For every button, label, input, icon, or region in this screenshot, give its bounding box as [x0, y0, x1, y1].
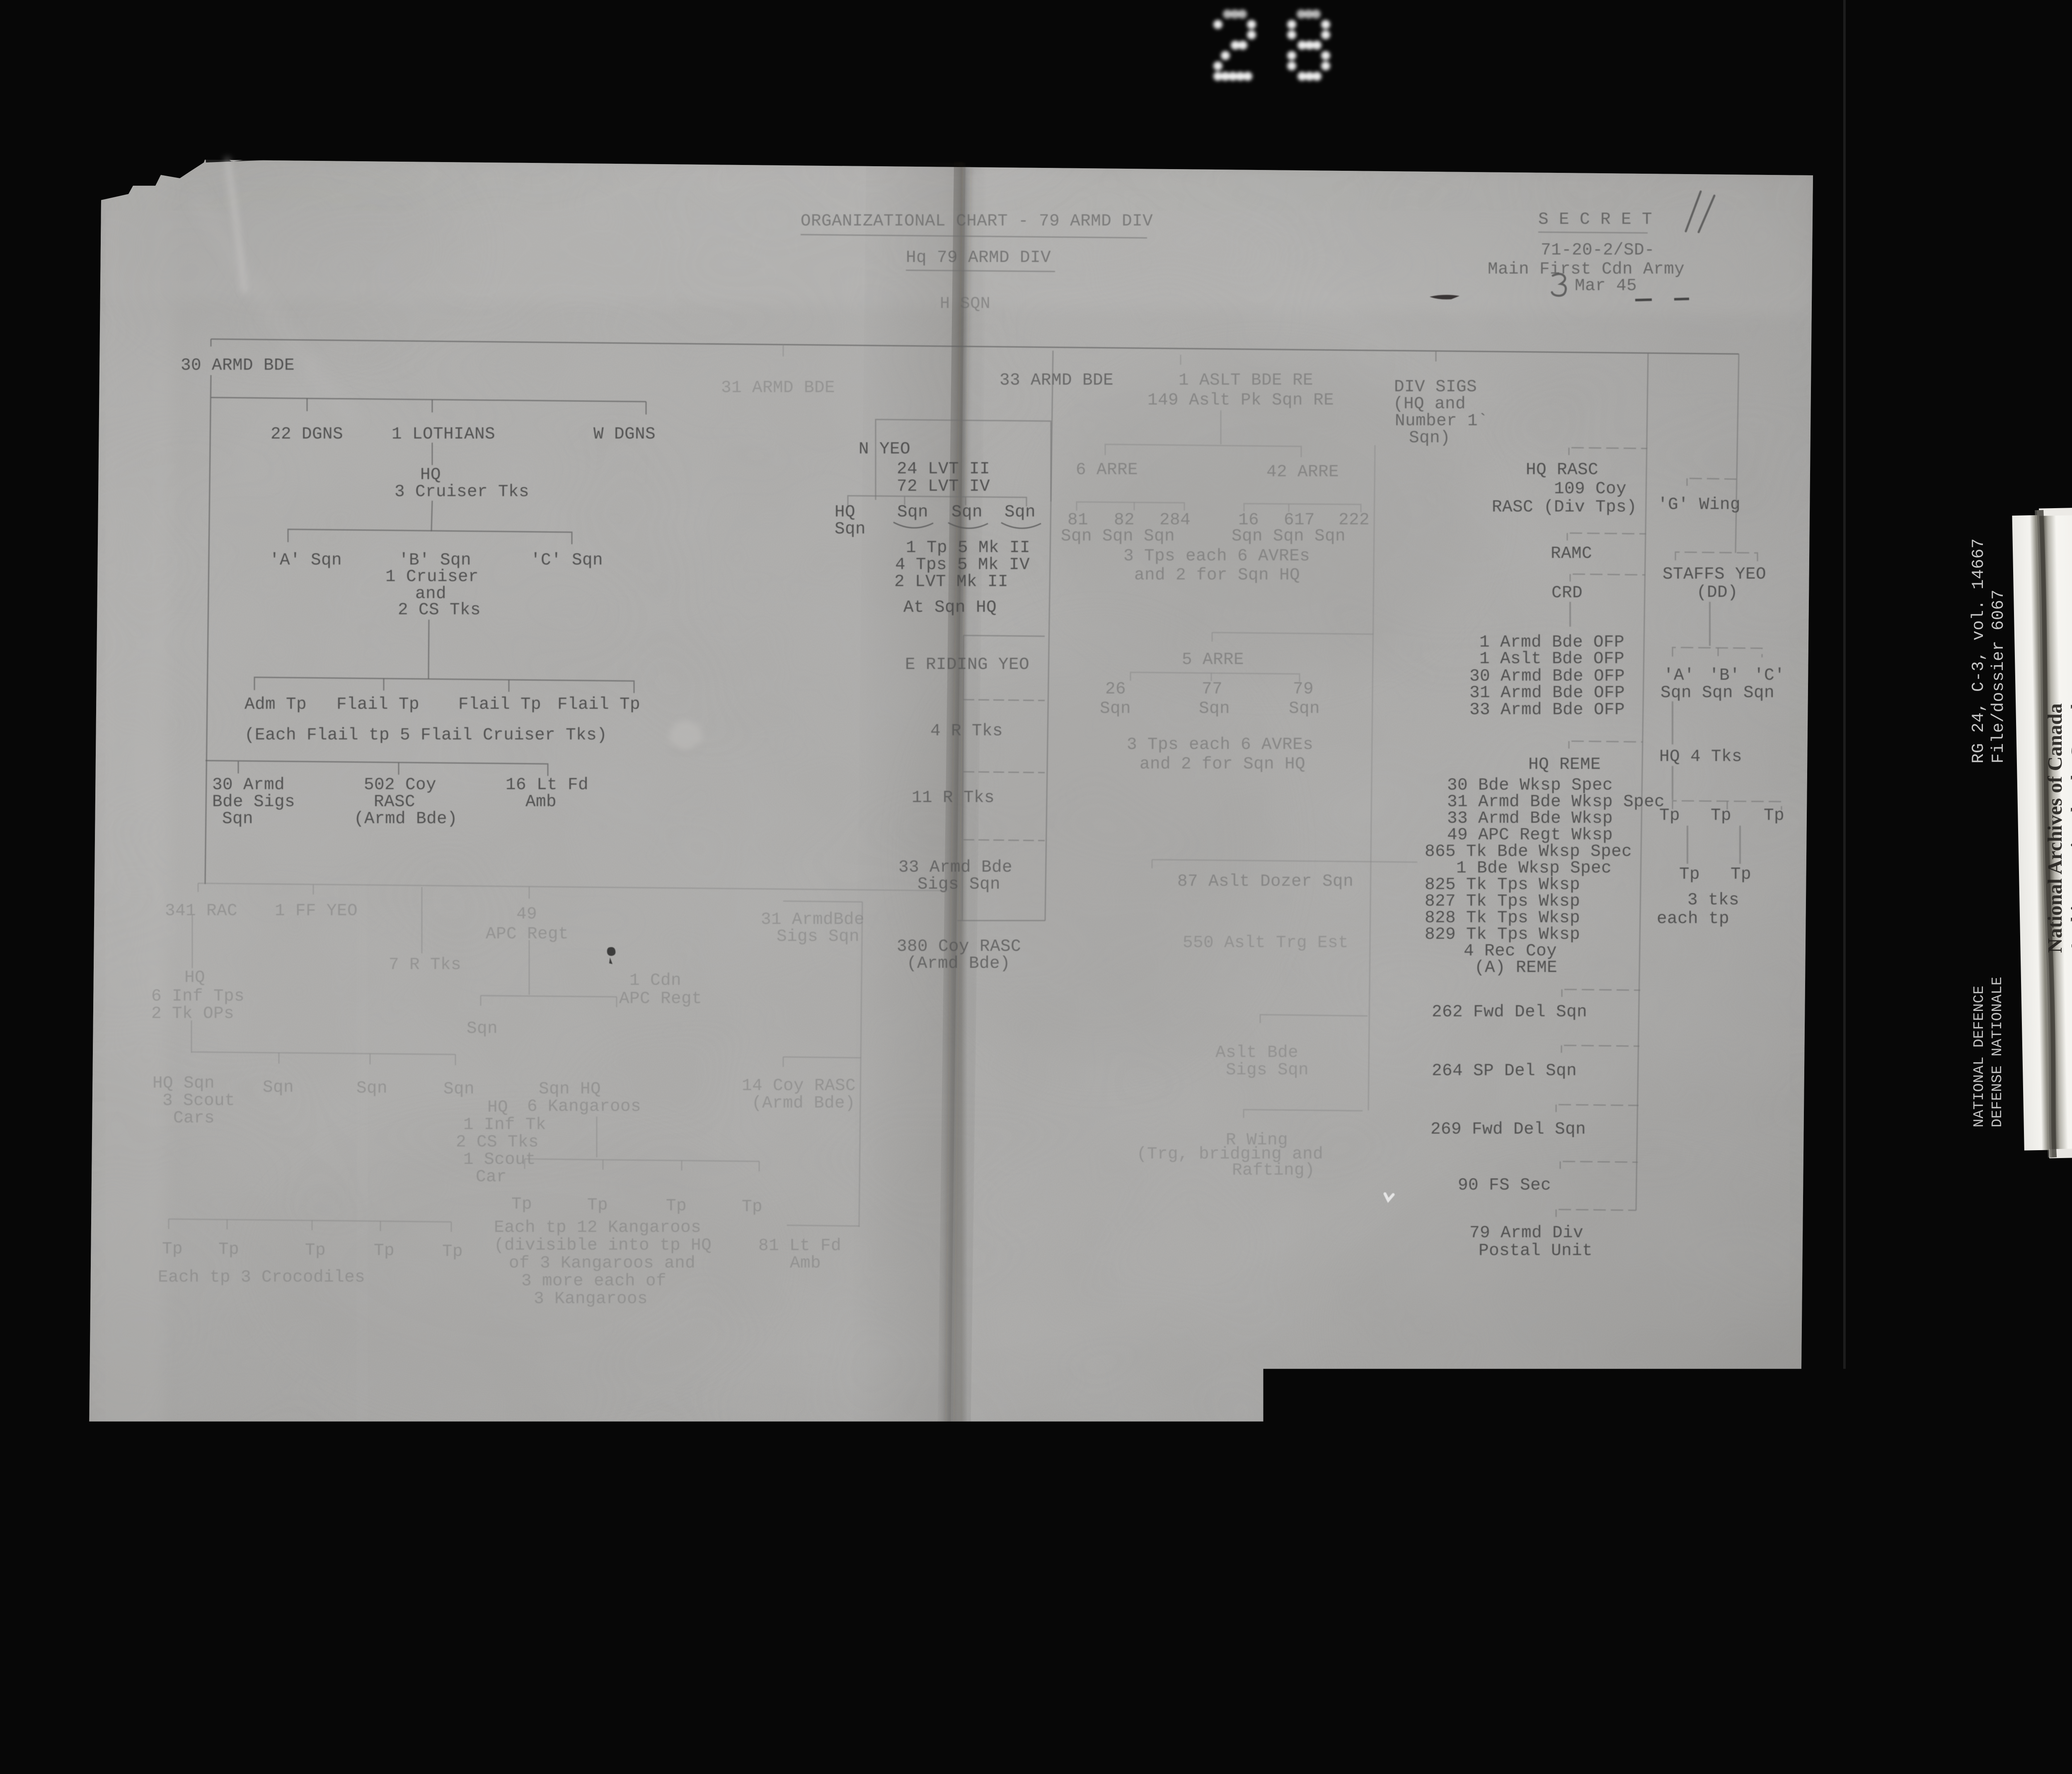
svg-text:502 Coy: 502 Coy: [364, 776, 436, 795]
svg-text:26: 26: [1105, 680, 1126, 699]
svg-text:DEFENSE NATIONALE: DEFENSE NATIONALE: [1989, 977, 2006, 1127]
svg-text:'A' Sqn: 'A' Sqn: [269, 551, 342, 570]
svg-text:Tp: Tp: [218, 1240, 239, 1259]
svg-text:(Armd Bde): (Armd Bde): [752, 1094, 855, 1113]
svg-text:1 Cdn: 1 Cdn: [629, 971, 681, 990]
svg-text:Mar 45: Mar 45: [1575, 276, 1637, 296]
svg-text:'G' Wing: 'G' Wing: [1658, 495, 1740, 514]
svg-text:Postal Unit: Postal Unit: [1479, 1241, 1593, 1260]
svg-text:Each tp 12 Kangaroos: Each tp 12 Kangaroos: [494, 1218, 701, 1237]
svg-text:Sqn: Sqn: [835, 520, 866, 539]
svg-text:Number 1`: Number 1`: [1395, 412, 1488, 431]
svg-text:1 Cruiser: 1 Cruiser: [385, 567, 479, 586]
svg-text:HQ: HQ: [184, 968, 205, 987]
svg-text:269 Fwd Del Sqn: 269 Fwd Del Sqn: [1431, 1120, 1586, 1139]
svg-text:264 SP Del Sqn: 264 SP Del Sqn: [1432, 1061, 1577, 1081]
svg-text:Sqn Sqn Sqn: Sqn Sqn Sqn: [1061, 527, 1175, 546]
svg-text:6 Inf Tps: 6 Inf Tps: [151, 987, 244, 1006]
svg-text:16 Lt Fd: 16 Lt Fd: [506, 776, 588, 795]
svg-text:30 Armd: 30 Armd: [212, 776, 285, 795]
svg-text:Tp: Tp: [742, 1197, 762, 1217]
svg-text:HQ 4 Tks: HQ 4 Tks: [1659, 747, 1742, 766]
svg-text:'A': 'A': [1663, 666, 1694, 685]
svg-text:87 Aslt Dozer Sqn: 87 Aslt Dozer Sqn: [1177, 872, 1353, 891]
svg-text:Tp: Tp: [374, 1241, 395, 1260]
svg-text:Sqn Sqn Sqn: Sqn Sqn Sqn: [1232, 527, 1346, 546]
svg-text:Sqn: Sqn: [467, 1019, 498, 1038]
svg-text:Sqn: Sqn: [1005, 503, 1036, 522]
svg-text:'C': 'C': [1754, 666, 1785, 685]
svg-text:109 Coy: 109 Coy: [1554, 480, 1627, 499]
svg-text:Sqn): Sqn): [1409, 429, 1450, 448]
svg-text:Amb: Amb: [525, 792, 557, 812]
svg-text:341 RAC: 341 RAC: [165, 902, 237, 921]
svg-text:4 R Tks: 4 R Tks: [930, 722, 1003, 741]
svg-text:(Armd Bde): (Armd Bde): [354, 809, 457, 829]
svg-text:Tp: Tp: [1659, 806, 1680, 825]
svg-text:14 Coy RASC: 14 Coy RASC: [742, 1076, 856, 1095]
svg-text:'B': 'B': [1709, 666, 1740, 685]
svg-text:Sigs Sqn: Sigs Sqn: [777, 927, 859, 946]
svg-text:Car: Car: [476, 1168, 507, 1187]
svg-text:2 Tk OPs: 2 Tk OPs: [151, 1004, 234, 1023]
svg-text:1 Aslt Bde OFP: 1 Aslt Bde OFP: [1479, 649, 1624, 669]
svg-text:Cars: Cars: [173, 1109, 215, 1128]
svg-text:CRD: CRD: [1552, 584, 1583, 603]
svg-text:RASC (Div Tps): RASC (Div Tps): [1492, 498, 1637, 517]
svg-text:1 Tp 5 Mk II: 1 Tp 5 Mk II: [906, 538, 1030, 557]
svg-text:S E C R E T: S E C R E T: [1538, 210, 1652, 229]
svg-text:Sqn: Sqn: [222, 809, 253, 829]
svg-text:Amb: Amb: [790, 1254, 821, 1273]
svg-text:ORGANIZATIONAL CHART - 79 ARMD: ORGANIZATIONAL CHART - 79 ARMD DIV: [801, 212, 1153, 231]
svg-text:and 2 for Sqn HQ: and 2 for Sqn HQ: [1134, 566, 1300, 585]
svg-text:Archives nationales du Canada: Archives nationales du Canada: [2067, 694, 2072, 953]
svg-text:Sqn: Sqn: [1199, 699, 1230, 718]
svg-text:Flail Tp: Flail Tp: [557, 695, 640, 714]
svg-text:Tp: Tp: [1711, 806, 1731, 825]
svg-text:Sqn: Sqn: [897, 503, 928, 522]
svg-text:6 Kangaroos: 6 Kangaroos: [527, 1097, 641, 1116]
svg-text:Rafting): Rafting): [1232, 1161, 1315, 1180]
svg-text:'C' Sqn: 'C' Sqn: [530, 551, 603, 570]
svg-text:Aslt Bde: Aslt Bde: [1215, 1043, 1298, 1062]
svg-text:6 ARRE: 6 ARRE: [1076, 460, 1138, 480]
svg-text:5 ARRE: 5 ARRE: [1182, 650, 1244, 669]
svg-text:Each tp 3 Crocodiles: Each tp 3 Crocodiles: [158, 1268, 365, 1287]
svg-text:1 Inf Tk: 1 Inf Tk: [463, 1115, 546, 1134]
svg-text:Tp: Tp: [162, 1240, 183, 1259]
svg-text:(HQ and: (HQ and: [1393, 395, 1466, 414]
svg-text:Flail Tp: Flail Tp: [336, 695, 419, 714]
svg-text:Flail Tp: Flail Tp: [458, 695, 541, 714]
svg-text:81 Lt Fd: 81 Lt Fd: [758, 1236, 841, 1255]
svg-text:3 Tps each 6 AVREs: 3 Tps each 6 AVREs: [1127, 735, 1313, 754]
svg-text:(A) REME: (A) REME: [1474, 958, 1557, 977]
svg-text:3 Scout: 3 Scout: [162, 1091, 235, 1110]
svg-text:Tp: Tp: [587, 1196, 608, 1215]
svg-text:Sqn Sqn Sqn: Sqn Sqn Sqn: [1661, 683, 1774, 703]
svg-text:31 ARMD BDE: 31 ARMD BDE: [721, 378, 835, 397]
svg-text:3 more each of: 3 more each of: [521, 1272, 666, 1291]
svg-text:E RIDING YEO: E RIDING YEO: [905, 655, 1029, 674]
svg-text:149 Aslt Pk Sqn RE: 149 Aslt Pk Sqn RE: [1147, 391, 1334, 410]
svg-text:(divisible into tp HQ: (divisible into tp HQ: [494, 1236, 712, 1255]
svg-text:3 Kangaroos: 3 Kangaroos: [534, 1289, 648, 1309]
svg-text:Tp: Tp: [305, 1241, 326, 1260]
svg-text:HQ: HQ: [420, 465, 441, 485]
svg-text:DIV SIGS: DIV SIGS: [1394, 378, 1477, 397]
svg-text:HQ: HQ: [835, 503, 855, 522]
svg-text:71-20-2/SD-: 71-20-2/SD-: [1541, 241, 1655, 260]
svg-text:4 Tps 5 Mk IV: 4 Tps 5 Mk IV: [895, 555, 1030, 574]
svg-text:RAMC: RAMC: [1551, 544, 1592, 563]
svg-text:49: 49: [516, 905, 537, 924]
svg-text:and 2 for Sqn HQ: and 2 for Sqn HQ: [1140, 755, 1305, 774]
svg-text:79 Armd Div: 79 Armd Div: [1469, 1224, 1583, 1243]
svg-text:Sigs Sqn: Sigs Sqn: [917, 875, 1000, 894]
svg-text:33 ARMD BDE: 33 ARMD BDE: [1000, 371, 1113, 390]
svg-text:Sqn: Sqn: [263, 1078, 294, 1097]
svg-text:Bde Sigs: Bde Sigs: [212, 792, 295, 812]
svg-text:Adm Tp: Adm Tp: [244, 695, 307, 714]
svg-text:RG 24, C-3, vol. 14667: RG 24, C-3, vol. 14667: [1969, 538, 1988, 764]
svg-text:2 CS Tks: 2 CS Tks: [456, 1133, 539, 1152]
svg-text:each tp: each tp: [1657, 909, 1729, 928]
svg-text:33 Armd Bde: 33 Armd Bde: [898, 858, 1012, 877]
svg-text:Tp: Tp: [666, 1197, 687, 1216]
svg-text:7 R Tks: 7 R Tks: [389, 955, 461, 974]
svg-text:90 FS Sec: 90 FS Sec: [1458, 1176, 1551, 1195]
svg-text:Sqn: Sqn: [1289, 699, 1320, 718]
svg-text:HQ Sqn: HQ Sqn: [152, 1074, 215, 1093]
svg-text:31 Armd Bde OFP: 31 Armd Bde OFP: [1469, 683, 1625, 703]
svg-text:(DD): (DD): [1697, 583, 1738, 602]
svg-text:380 Coy RASC: 380 Coy RASC: [897, 937, 1021, 956]
svg-text:42 ARRE: 42 ARRE: [1266, 463, 1339, 482]
svg-text:STAFFS YEO: STAFFS YEO: [1663, 565, 1766, 584]
svg-text:11 R Tks: 11 R Tks: [912, 788, 995, 807]
svg-text:24 LVT II: 24 LVT II: [897, 460, 990, 479]
svg-text:31 ArmdBde: 31 ArmdBde: [761, 910, 864, 929]
svg-text:77: 77: [1202, 680, 1222, 699]
svg-text:1 LOTHIANS: 1 LOTHIANS: [392, 425, 495, 444]
svg-text:APC Regt: APC Regt: [486, 925, 569, 944]
svg-text:File/dossier 6067: File/dossier 6067: [1989, 589, 2008, 763]
svg-text:Tp: Tp: [442, 1242, 463, 1261]
svg-text:Tp: Tp: [1731, 865, 1751, 884]
svg-text:Tp: Tp: [1764, 806, 1784, 825]
svg-text:1 FF YEO: 1 FF YEO: [275, 902, 358, 921]
svg-text:(Each Flail tp 5 Flail Cruiser: (Each Flail tp 5 Flail Cruiser Tks): [244, 726, 607, 745]
svg-text:National Archives of Canada: National Archives of Canada: [2043, 703, 2066, 953]
svg-text:Sqn: Sqn: [1100, 699, 1131, 718]
svg-text:Hq 79 ARMD DIV: Hq 79 ARMD DIV: [906, 248, 1051, 267]
svg-text:HQ: HQ: [487, 1098, 508, 1117]
svg-text:79: 79: [1293, 680, 1314, 699]
svg-text:550 Aslt Trg Est: 550 Aslt Trg Est: [1183, 933, 1348, 952]
svg-text:HQ RASC: HQ RASC: [1526, 460, 1598, 480]
svg-text:33 Armd Bde OFP: 33 Armd Bde OFP: [1469, 700, 1625, 720]
svg-text:Tp: Tp: [1679, 865, 1700, 884]
svg-text:2 LVT Mk II: 2 LVT Mk II: [894, 572, 1008, 591]
svg-text:HQ REME: HQ REME: [1528, 755, 1601, 774]
svg-text:3 tks: 3 tks: [1687, 891, 1739, 910]
svg-text:1 ASLT BDE RE: 1 ASLT BDE RE: [1179, 371, 1313, 390]
svg-text:At Sqn HQ: At Sqn HQ: [903, 598, 997, 617]
svg-text:22 DGNS: 22 DGNS: [271, 425, 343, 444]
svg-text:262 Fwd Del Sqn: 262 Fwd Del Sqn: [1432, 1003, 1587, 1022]
svg-text:Sqn: Sqn: [356, 1079, 387, 1098]
svg-text:(Armd Bde): (Armd Bde): [907, 954, 1010, 973]
svg-text:of 3 Kangaroos and: of 3 Kangaroos and: [509, 1254, 695, 1273]
svg-text:W DGNS: W DGNS: [593, 425, 656, 444]
svg-text:30 ARMD BDE: 30 ARMD BDE: [181, 356, 295, 375]
svg-text:APC Regt: APC Regt: [619, 989, 702, 1008]
svg-text:Tp: Tp: [511, 1195, 532, 1214]
svg-text:H SQN: H SQN: [940, 295, 990, 313]
svg-text:3 Cruiser Tks: 3 Cruiser Tks: [395, 482, 529, 502]
svg-text:Sqn HQ: Sqn HQ: [539, 1080, 601, 1099]
svg-text:RASC: RASC: [374, 792, 415, 812]
svg-text:3 Tps each 6 AVREs: 3 Tps each 6 AVREs: [1123, 547, 1310, 566]
svg-text:72 LVT IV: 72 LVT IV: [897, 477, 990, 496]
svg-text:Sqn: Sqn: [951, 503, 983, 522]
svg-text:NATIONAL DEFENCE: NATIONAL DEFENCE: [1971, 986, 1987, 1127]
svg-text:Sqn: Sqn: [443, 1080, 474, 1099]
svg-text:N YEO: N YEO: [859, 440, 910, 459]
svg-text:2 CS Tks: 2 CS Tks: [398, 601, 481, 620]
svg-text:Sigs Sqn: Sigs Sqn: [1226, 1061, 1309, 1080]
